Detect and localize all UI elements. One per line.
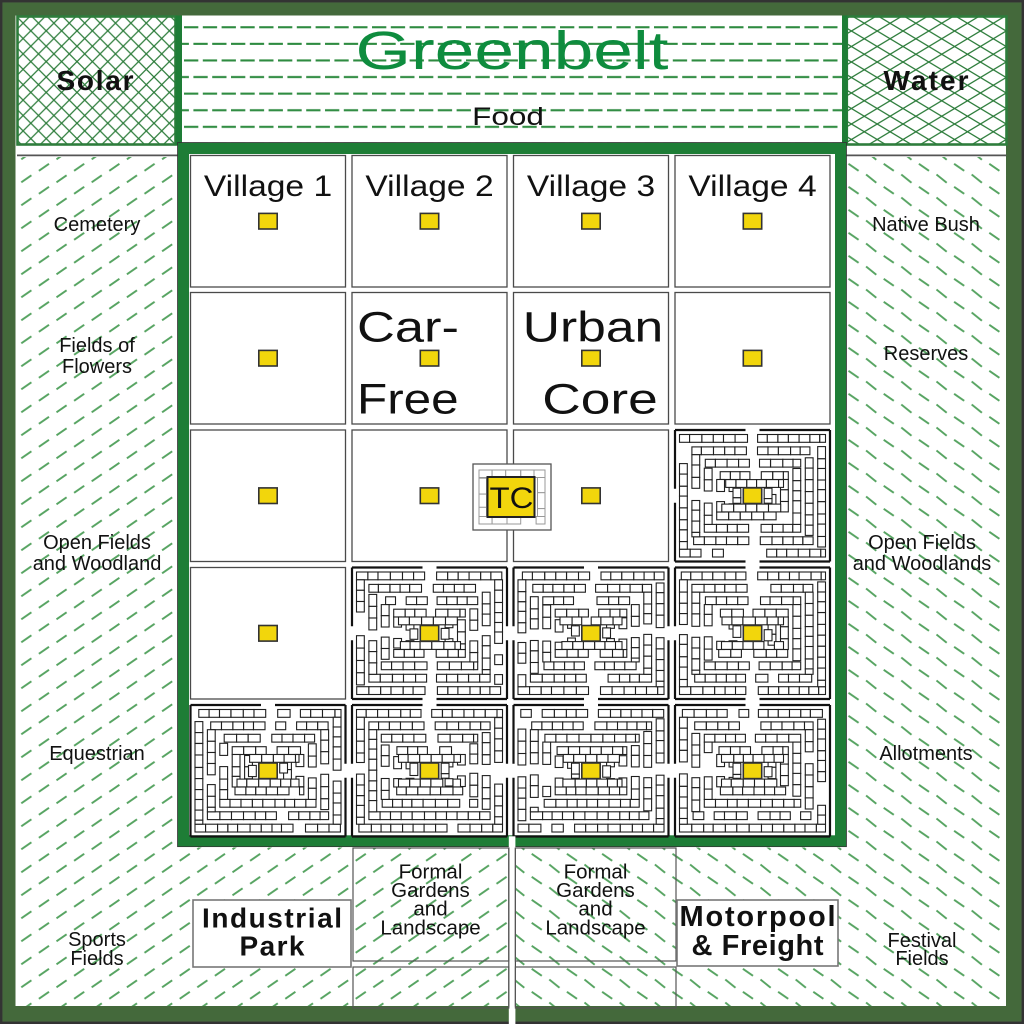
svg-text:Allotments: Allotments: [879, 743, 972, 765]
svg-text:TC: TC: [490, 480, 534, 514]
svg-text:& Freight: & Freight: [692, 930, 824, 962]
svg-text:Landscape: Landscape: [545, 916, 645, 939]
svg-text:Open Fields: Open Fields: [43, 532, 151, 554]
svg-text:Reserves: Reserves: [884, 343, 968, 365]
svg-text:Village 3: Village 3: [527, 169, 655, 203]
svg-text:Village 4: Village 4: [688, 169, 816, 203]
svg-text:Park: Park: [240, 931, 305, 962]
svg-text:Free: Free: [357, 375, 459, 423]
svg-text:Fields: Fields: [895, 948, 948, 970]
svg-text:Native Bush: Native Bush: [872, 214, 980, 236]
svg-text:Equestrian: Equestrian: [49, 743, 145, 765]
svg-text:Car-: Car-: [357, 304, 459, 352]
svg-text:Urban: Urban: [523, 303, 664, 351]
svg-text:Village 2: Village 2: [365, 169, 493, 203]
svg-text:Fields of: Fields of: [59, 335, 135, 357]
svg-text:Cemetery: Cemetery: [54, 214, 141, 236]
svg-text:Motorpool: Motorpool: [680, 901, 836, 933]
svg-text:Food: Food: [472, 103, 544, 131]
svg-text:Greenbelt: Greenbelt: [356, 21, 669, 81]
svg-text:Flowers: Flowers: [62, 356, 132, 378]
svg-text:and Woodland: and Woodland: [33, 553, 162, 575]
svg-text:and Woodlands: and Woodlands: [853, 553, 992, 575]
svg-text:Village 1: Village 1: [204, 169, 332, 203]
svg-text:Landscape: Landscape: [380, 916, 480, 939]
svg-text:Industrial: Industrial: [202, 903, 342, 934]
svg-text:Fields: Fields: [70, 948, 123, 970]
svg-text:Solar: Solar: [57, 65, 134, 96]
svg-text:Open Fields: Open Fields: [868, 532, 976, 554]
svg-text:Core: Core: [542, 375, 658, 423]
